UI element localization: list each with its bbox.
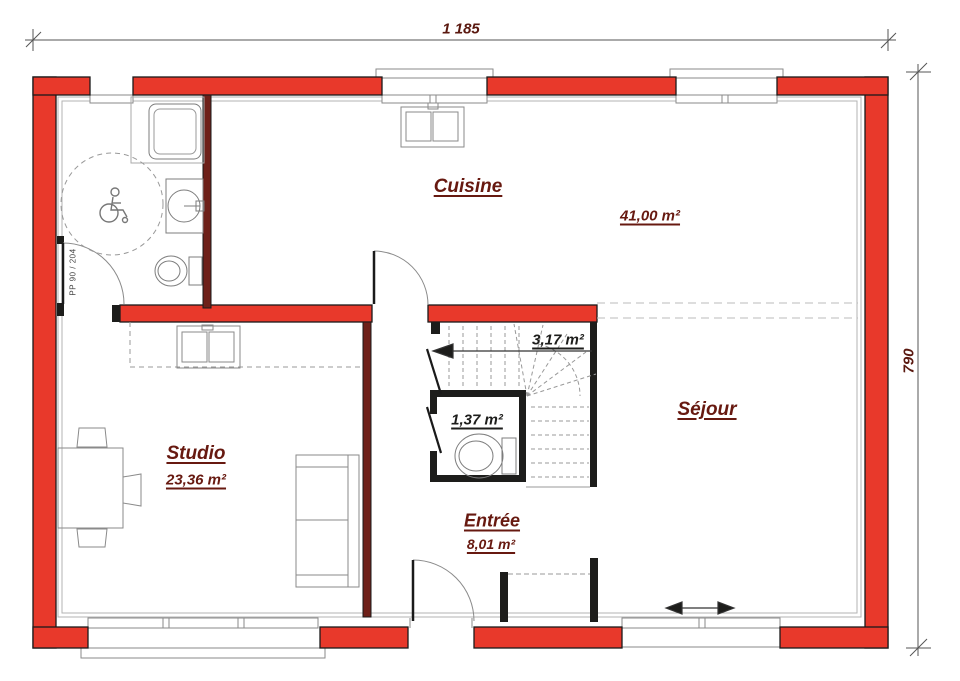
kitchen-fixtures [130,103,464,368]
dimension-width-label: 1 185 [442,21,480,38]
windows [81,69,786,658]
room-area-stair-hall: 3,17 m² [532,332,584,349]
dimension-height-label: 790 [901,348,918,373]
partitions [57,236,598,622]
floor-plan: 1 185 790 Cuisine 41,00 m² Séjour Studio… [0,0,960,681]
dimension-lines [25,29,931,656]
room-label-studio: Studio [166,443,225,465]
chair [77,529,107,547]
table [58,448,123,528]
bathroom-fixtures [61,97,204,286]
room-area-wc: 1,37 m² [451,412,503,429]
counter-sink-icon [182,332,207,362]
chair [123,474,141,506]
sofa [296,455,359,587]
doors [63,243,474,621]
interior-walls [203,95,371,617]
room-label-cuisine: Cuisine [434,176,503,198]
wheelchair-icon [100,188,128,223]
shower-icon [149,104,201,159]
inner-face-lines [58,97,861,617]
wc-toilet-icon [455,434,503,478]
floor-plan-drawing [0,0,960,681]
room-area-cuisine: 41,00 m² [620,208,680,225]
room-area-entree: 8,01 m² [467,536,515,552]
toilet-icon [155,256,187,286]
room-area-studio: 23,36 m² [166,472,226,489]
beam-lines [597,303,858,318]
sliding-bay-arrow [666,602,734,614]
door-spec-label: PP 90 / 204 [69,248,78,295]
kitchen-sink-icon [406,112,431,141]
chair [77,428,107,447]
room-label-entree: Entrée [464,511,520,532]
wc-fixtures [455,434,516,478]
room-label-sejour: Séjour [677,399,736,421]
